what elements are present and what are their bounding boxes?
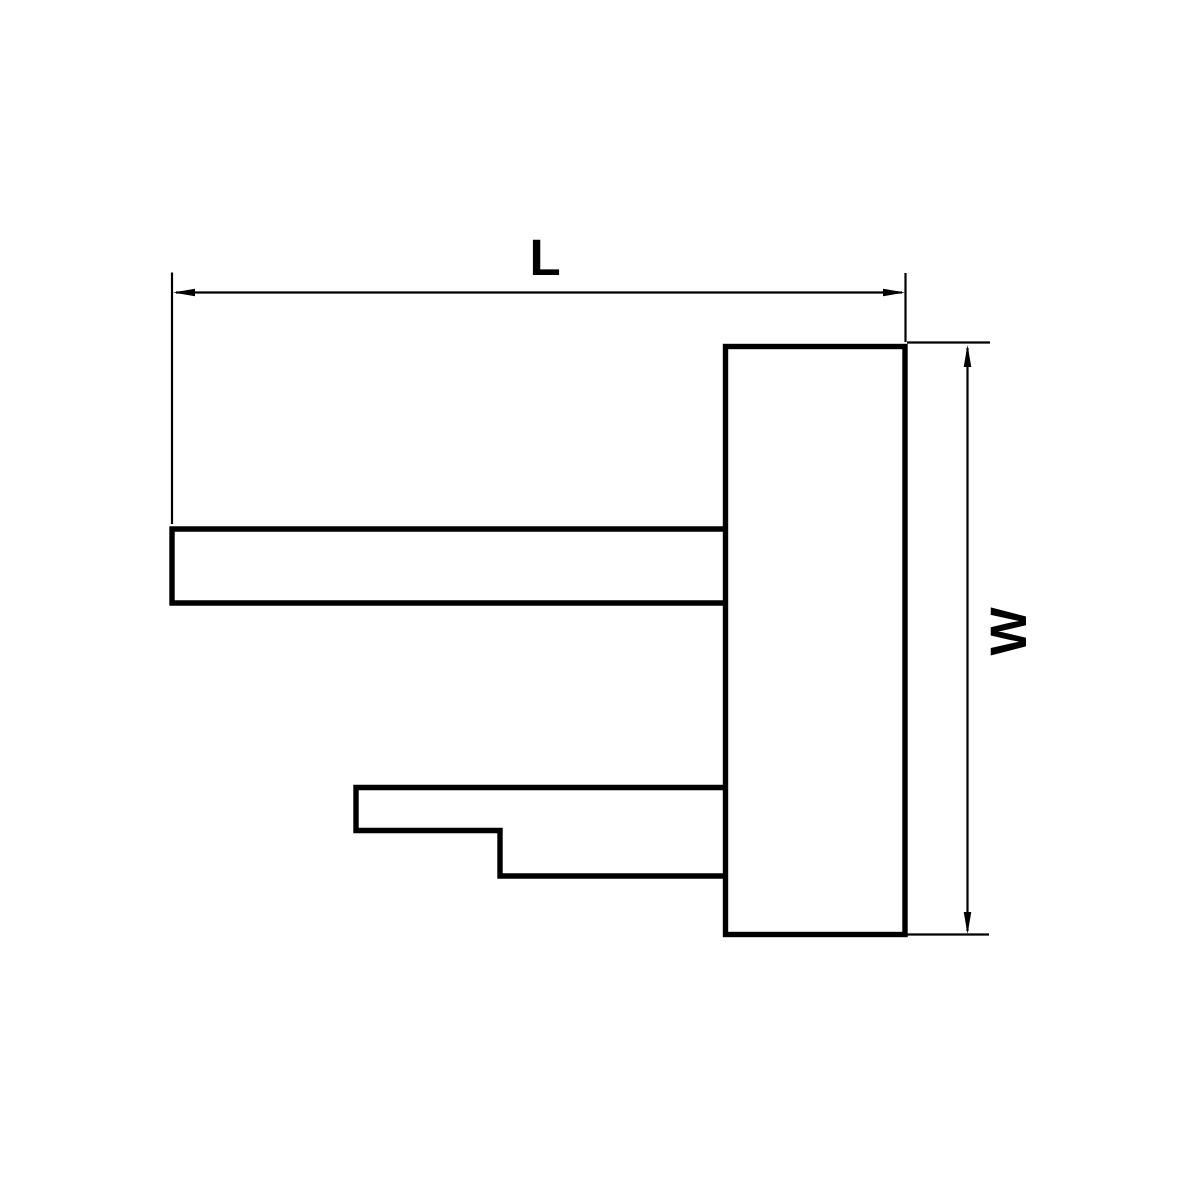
svg-text:L: L — [530, 229, 561, 286]
svg-text:W: W — [980, 607, 1037, 656]
